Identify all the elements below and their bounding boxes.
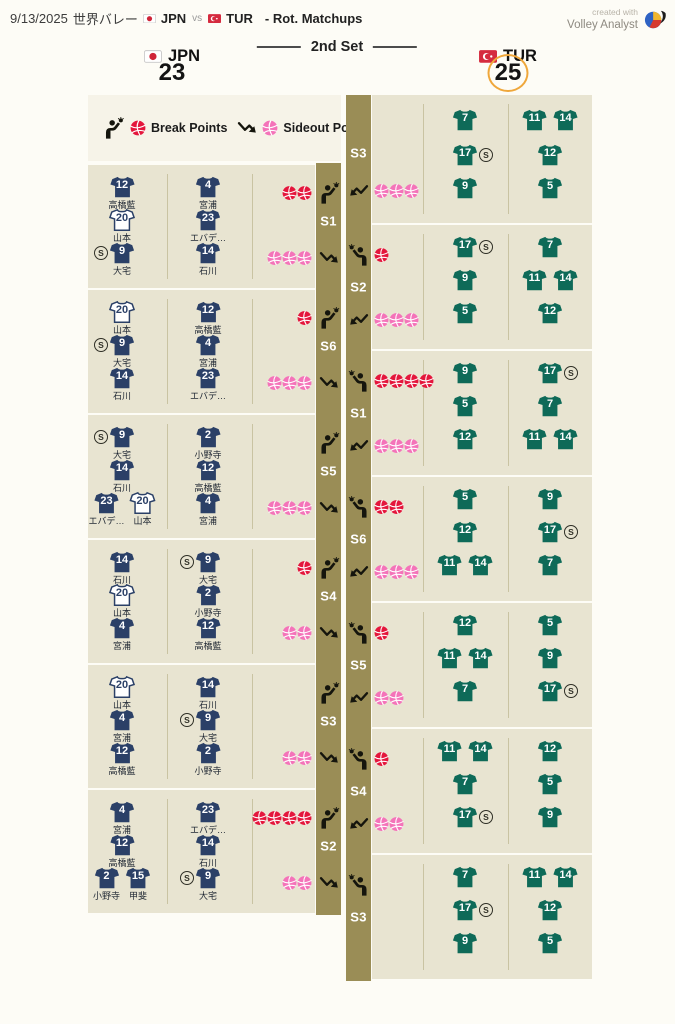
jersey-number: 17 [537, 525, 563, 536]
player-name: 宮浦 [199, 516, 217, 526]
jersey-tur-11: 11 [522, 427, 548, 451]
jersey-tur-9: 9 [452, 361, 478, 385]
break-point-ball [267, 811, 282, 826]
column-divider [508, 234, 509, 340]
serve-icon [347, 496, 370, 518]
jersey-jpn-14: 14 [195, 833, 221, 857]
jersey-jpn-9: 9S [195, 550, 221, 574]
jersey-number: 14 [195, 246, 221, 257]
sideout-point-ball [297, 251, 312, 266]
player-name: エバデ… [190, 391, 226, 401]
column-divider [508, 864, 509, 970]
jersey-number: 17 [537, 366, 563, 377]
serve-icon [317, 557, 340, 579]
sideout-points-row [374, 691, 404, 706]
jersey-tur-14: 14 [468, 553, 494, 577]
vs-label: vs [192, 13, 202, 24]
sideout-point-ball [404, 439, 419, 454]
column-divider [423, 104, 424, 214]
jersey-jpn-9: 9S [109, 241, 135, 265]
jersey-tur-12: 12 [537, 301, 563, 325]
jersey-number: 9 [195, 555, 221, 566]
jersey-tur-11: 11 [437, 646, 463, 670]
sideout-points-row [267, 376, 312, 391]
jersey-tur-7: 7 [537, 235, 563, 259]
rotation-label: S1 [350, 406, 367, 421]
break-point-ball [404, 374, 419, 389]
jpn-rotation-block-S4-3: 14石川 20山本 4宮浦 9S大宅 2小野寺 12高橋藍 [88, 540, 315, 663]
jersey-number: 11 [522, 870, 548, 881]
player-name: 宮浦 [113, 641, 131, 651]
jersey-number: 5 [537, 936, 563, 947]
divider-line [373, 46, 417, 48]
jersey-tur-7: 7 [452, 865, 478, 889]
rotation-label: S6 [350, 532, 367, 547]
jersey-jpn-14: 14 [195, 675, 221, 699]
jersey-number: 9 [452, 273, 478, 284]
jersey-jpn-4: 4 [109, 708, 135, 732]
break-point-ball [252, 811, 267, 826]
jersey-number: 9 [195, 871, 221, 882]
jersey-number: 12 [452, 432, 478, 443]
break-point-ball-icon [130, 120, 146, 136]
jersey-number: 14 [553, 273, 579, 284]
jersey-tur-12: 12 [452, 613, 478, 637]
jersey-jpn-14: 14 [109, 366, 135, 390]
jersey-jpn-9: 9S [109, 333, 135, 357]
receive-arrow-icon [237, 120, 257, 136]
setter-badge: S [564, 366, 578, 380]
jersey-number: 12 [537, 148, 563, 159]
serve-icon [347, 622, 370, 644]
jersey-number: 5 [537, 181, 563, 192]
jpn-rotation-block-S2-5: 4宮浦 12高橋藍 2小野寺 15甲斐 23エバデ… 14石川 9S大宅 [88, 790, 315, 913]
jersey-number: 14 [109, 371, 135, 382]
jersey-tur-12: 12 [452, 427, 478, 451]
jersey-tur-7: 7 [452, 679, 478, 703]
sideout-points-row [267, 251, 312, 266]
player-name: 高橋藍 [194, 641, 221, 651]
jersey-tur-9: 9 [452, 176, 478, 200]
serve-icon [317, 307, 340, 329]
jersey-jpn-20: 20 [109, 675, 135, 699]
jersey-tur-17: 17S [452, 235, 478, 259]
setter-badge: S [479, 810, 493, 824]
column-divider [252, 174, 253, 279]
receive-arrow-icon [349, 183, 369, 199]
break-points-label: Break Points [151, 121, 227, 135]
jersey-tur-9: 9 [537, 646, 563, 670]
column-divider [252, 424, 253, 529]
setter-badge: S [180, 555, 194, 569]
jersey-number: 12 [537, 306, 563, 317]
jersey-number: 2 [195, 746, 221, 757]
credit-line: created with [567, 7, 638, 18]
jersey-number: 9 [452, 366, 478, 377]
receive-arrow-icon [349, 816, 369, 832]
sideout-points-row [282, 751, 312, 766]
jersey-number: 4 [109, 805, 135, 816]
rotation-label: S5 [320, 464, 337, 479]
break-points-row [282, 186, 312, 201]
tur-set-score: 25 [495, 59, 522, 87]
break-point-ball [297, 811, 312, 826]
jersey-number: 2 [195, 430, 221, 441]
app-credit: created with Volley Analyst [567, 7, 667, 33]
jersey-jpn-4: 4 [109, 800, 135, 824]
serve-icon [317, 182, 340, 204]
japan-flag-icon [143, 14, 156, 23]
break-points-row [374, 374, 434, 389]
jersey-number: 14 [553, 870, 579, 881]
jersey-tur-12: 12 [537, 739, 563, 763]
column-divider [423, 486, 424, 592]
setter-badge: S [94, 338, 108, 352]
player-name: 高橋藍 [108, 766, 135, 776]
break-points-row [374, 752, 389, 767]
sideout-point-ball [389, 439, 404, 454]
jersey-number: 11 [437, 651, 463, 662]
sideout-point-ball [389, 184, 404, 199]
jersey-jpn-23: 23 [195, 800, 221, 824]
setter-badge: S [94, 430, 108, 444]
app-name: Volley Analyst [567, 18, 638, 33]
jersey-tur-9: 9 [452, 268, 478, 292]
jersey-tur-11: 11 [437, 739, 463, 763]
jersey-number: 14 [109, 555, 135, 566]
break-point-ball [374, 248, 389, 263]
jersey-number: 12 [109, 746, 135, 757]
jersey-jpn-4: 4 [195, 175, 221, 199]
receive-arrow-icon [319, 250, 339, 266]
jersey-jpn-12: 12 [109, 175, 135, 199]
jersey-number: 4 [195, 180, 221, 191]
report-title: 9/13/2025 世界バレー JPN vs TUR - Rot. Matchu… [10, 9, 362, 28]
jersey-number: 9 [109, 430, 135, 441]
jersey-number: 7 [537, 558, 563, 569]
break-point-ball [374, 500, 389, 515]
sideout-point-ball [374, 691, 389, 706]
legend: Break Points Sideout Points [88, 95, 341, 161]
break-point-ball [419, 374, 434, 389]
jersey-number: 23 [93, 496, 119, 507]
volley-analyst-logo-icon [643, 9, 667, 31]
jersey-tur-17: 17S [537, 520, 563, 544]
rotation-matchup-report: 9/13/2025 世界バレー JPN vs TUR - Rot. Matchu… [0, 0, 675, 1024]
jersey-number: 9 [537, 492, 563, 503]
jersey-number: 11 [522, 432, 548, 443]
jersey-tur-9: 9 [537, 487, 563, 511]
jersey-number: 9 [109, 338, 135, 349]
jersey-jpn-4: 4 [109, 616, 135, 640]
jersey-number: 11 [437, 558, 463, 569]
column-divider [423, 234, 424, 340]
jersey-jpn-9: 9S [195, 866, 221, 890]
sideout-point-ball [389, 565, 404, 580]
jersey-number: 20 [109, 680, 135, 691]
sideout-point-ball [282, 626, 297, 641]
jersey-number: 14 [553, 432, 579, 443]
jersey-number: 5 [452, 492, 478, 503]
jersey-number: 7 [452, 870, 478, 881]
jersey-number: 23 [195, 371, 221, 382]
column-divider [167, 674, 168, 779]
sideout-points-row [374, 565, 419, 580]
jersey-jpn-20: 20 [109, 583, 135, 607]
jpn-rotation-block-S5-2: 9S大宅 14石川 23エバデ… 20山本 2小野寺 12高橋藍 4宮浦 [88, 415, 315, 538]
jersey-jpn-20: 20 [109, 208, 135, 232]
set-name: 2nd Set [311, 39, 363, 55]
column-divider [508, 104, 509, 214]
jpn-set-score: 23 [159, 59, 186, 87]
receive-arrow-icon [349, 564, 369, 580]
jersey-number: 12 [195, 305, 221, 316]
jersey-number: 20 [109, 213, 135, 224]
jersey-jpn-9: 9S [195, 708, 221, 732]
jersey-number: 5 [452, 399, 478, 410]
jersey-tur-7: 7 [452, 108, 478, 132]
event-name: 世界バレー [73, 9, 138, 28]
jersey-number: 7 [537, 240, 563, 251]
sideout-point-ball [297, 501, 312, 516]
jersey-jpn-12: 12 [109, 833, 135, 857]
break-point-ball [374, 626, 389, 641]
team2-abbr: TUR [226, 11, 253, 26]
jersey-number: 12 [452, 618, 478, 629]
sideout-point-ball [389, 313, 404, 328]
player-name: 石川 [199, 266, 217, 276]
break-point-ball [282, 811, 297, 826]
jersey-number: 4 [195, 496, 221, 507]
sideout-point-ball-icon [262, 120, 278, 136]
rotation-label: S5 [350, 658, 367, 673]
jersey-number: 4 [109, 621, 135, 632]
jersey-number: 14 [468, 558, 494, 569]
jersey-tur-17: 17S [452, 143, 478, 167]
sideout-point-ball [374, 184, 389, 199]
column-divider [252, 674, 253, 779]
sideout-point-ball [297, 876, 312, 891]
jersey-jpn-2: 2 [195, 583, 221, 607]
sideout-point-ball [282, 501, 297, 516]
jersey-number: 14 [468, 651, 494, 662]
serve-icon [347, 370, 370, 392]
jersey-number: 7 [452, 777, 478, 788]
tur-rotation-block-S3-0: 7 17S 9 11 14 12 5 [372, 95, 592, 223]
jersey-number: 11 [522, 113, 548, 124]
serve-icon [317, 807, 340, 829]
sideout-point-ball [374, 817, 389, 832]
column-divider [508, 738, 509, 844]
rotation-label: S3 [350, 146, 367, 161]
jersey-jpn-4: 4 [195, 333, 221, 357]
setter-badge: S [564, 525, 578, 539]
report-type-label: - Rot. Matchups [265, 11, 363, 26]
sideout-point-ball [404, 184, 419, 199]
jersey-number: 14 [553, 113, 579, 124]
jersey-jpn-23: 23 [195, 208, 221, 232]
sideout-point-ball [404, 313, 419, 328]
jersey-tur-12: 12 [452, 520, 478, 544]
sideout-points-row [374, 439, 419, 454]
jersey-tur-17: 17S [537, 679, 563, 703]
jersey-number: 20 [130, 496, 156, 507]
jersey-number: 14 [195, 838, 221, 849]
sideout-point-ball [282, 251, 297, 266]
break-point-ball [389, 374, 404, 389]
receive-arrow-icon [319, 625, 339, 641]
player-name: 小野寺 [93, 891, 120, 901]
sideout-point-ball [297, 751, 312, 766]
break-point-ball [297, 186, 312, 201]
column-divider [167, 299, 168, 404]
sideout-points-row [374, 313, 419, 328]
jpn-rotation-block-S3-4: 20山本 4宮浦 12高橋藍 14石川 9S大宅 2小野寺 [88, 665, 315, 788]
jersey-number: 14 [109, 463, 135, 474]
jersey-tur-14: 14 [553, 427, 579, 451]
sideout-point-ball [282, 876, 297, 891]
jersey-tur-5: 5 [537, 613, 563, 637]
jersey-number: 9 [452, 181, 478, 192]
jersey-number: 9 [537, 651, 563, 662]
jersey-tur-14: 14 [553, 865, 579, 889]
jersey-number: 9 [195, 713, 221, 724]
jersey-tur-14: 14 [468, 646, 494, 670]
jersey-number: 4 [195, 338, 221, 349]
jersey-tur-7: 7 [537, 394, 563, 418]
jersey-number: 23 [195, 805, 221, 816]
receive-arrow-icon [349, 690, 369, 706]
sideout-point-ball [282, 751, 297, 766]
serve-icon [317, 682, 340, 704]
jersey-number: 23 [195, 213, 221, 224]
rotation-label: S2 [320, 839, 337, 854]
jersey-number: 4 [109, 713, 135, 724]
serve-icon [317, 432, 340, 454]
jersey-jpn-12: 12 [195, 616, 221, 640]
sideout-point-ball [297, 376, 312, 391]
rotation-label: S3 [320, 714, 337, 729]
jersey-jpn-14: 14 [109, 458, 135, 482]
jersey-jpn-12: 12 [195, 300, 221, 324]
player-name: 石川 [113, 391, 131, 401]
jersey-jpn-4: 4 [195, 491, 221, 515]
jersey-number: 7 [537, 399, 563, 410]
rotation-label: S4 [320, 589, 337, 604]
player-name: 大宅 [199, 891, 217, 901]
column-divider [167, 549, 168, 654]
jersey-number: 7 [452, 684, 478, 695]
rotation-label: S4 [350, 784, 367, 799]
serve-icon [347, 244, 370, 266]
jersey-tur-9: 9 [537, 805, 563, 829]
tur-rotation-block-S2-1: 17S 9 5 7 11 14 12 [372, 225, 592, 349]
jersey-number: 12 [109, 838, 135, 849]
player-name: エバデ… [88, 516, 124, 526]
receive-arrow-icon [319, 375, 339, 391]
player-name: 山本 [133, 516, 151, 526]
rotation-label: S2 [350, 280, 367, 295]
sideout-point-ball [374, 313, 389, 328]
break-point-ball [389, 500, 404, 515]
jersey-number: 5 [452, 306, 478, 317]
jersey-jpn-20: 20 [130, 491, 156, 515]
rotation-label: S3 [350, 910, 367, 925]
jersey-tur-5: 5 [452, 301, 478, 325]
rotation-label: S1 [320, 214, 337, 229]
sideout-point-ball [267, 376, 282, 391]
jersey-tur-14: 14 [553, 108, 579, 132]
break-points-row [374, 626, 389, 641]
break-point-ball [374, 374, 389, 389]
jpn-rotation-block-S6-1: 20山本 9S大宅 14石川 12高橋藍 4宮浦 23エバデ… [88, 290, 315, 413]
jersey-number: 17 [452, 240, 478, 251]
jersey-jpn-2: 2 [195, 741, 221, 765]
jersey-number: 9 [452, 936, 478, 947]
jersey-tur-5: 5 [537, 931, 563, 955]
turkey-flag-icon [208, 14, 221, 23]
jersey-jpn-12: 12 [195, 458, 221, 482]
jersey-tur-12: 12 [537, 143, 563, 167]
jersey-number: 12 [195, 621, 221, 632]
jersey-jpn-14: 14 [109, 550, 135, 574]
jersey-number: 2 [93, 871, 119, 882]
jersey-number: 11 [522, 273, 548, 284]
jersey-tur-9: 9 [452, 931, 478, 955]
column-divider [252, 299, 253, 404]
column-divider [167, 424, 168, 529]
setter-badge: S [180, 713, 194, 727]
jersey-jpn-14: 14 [195, 241, 221, 265]
jersey-tur-7: 7 [452, 772, 478, 796]
jersey-number: 17 [452, 810, 478, 821]
receive-arrow-icon [349, 312, 369, 328]
break-point-ball [297, 311, 312, 326]
tur-rotation-strip: S3 S2 S1 S6 [346, 95, 371, 981]
jersey-number: 5 [537, 777, 563, 788]
jersey-tur-11: 11 [437, 553, 463, 577]
column-divider [167, 799, 168, 904]
sideout-point-ball [374, 565, 389, 580]
jersey-tur-11: 11 [522, 865, 548, 889]
sideout-point-ball [267, 251, 282, 266]
team1-abbr: JPN [161, 11, 186, 26]
jersey-tur-5: 5 [537, 772, 563, 796]
jersey-number: 17 [452, 903, 478, 914]
jersey-jpn-23: 23 [93, 491, 119, 515]
jersey-number: 17 [537, 684, 563, 695]
setter-badge: S [479, 903, 493, 917]
tur-rotation-block-S5-4: 12 11 14 7 5 9 17S [372, 603, 592, 727]
sideout-point-ball [297, 626, 312, 641]
jersey-jpn-15: 15 [125, 866, 151, 890]
jpn-rotation-block-S1-0: 12高橋藍 20山本 9S大宅 4宮浦 23エバデ… 14石川 [88, 165, 315, 288]
column-divider [508, 486, 509, 592]
setter-badge: S [564, 684, 578, 698]
sideout-points-row [267, 501, 312, 516]
serve-icon [347, 874, 370, 896]
jersey-jpn-2: 2 [195, 425, 221, 449]
jersey-tur-17: 17S [452, 898, 478, 922]
column-divider [508, 612, 509, 718]
jersey-number: 17 [452, 148, 478, 159]
break-points-row [252, 811, 312, 826]
jersey-tur-17: 17S [452, 805, 478, 829]
receive-arrow-icon [319, 750, 339, 766]
jersey-number: 5 [537, 618, 563, 629]
tur-rotation-block-S4-5: 11 14 7 17S 12 5 9 [372, 729, 592, 853]
jersey-number: 9 [109, 246, 135, 257]
